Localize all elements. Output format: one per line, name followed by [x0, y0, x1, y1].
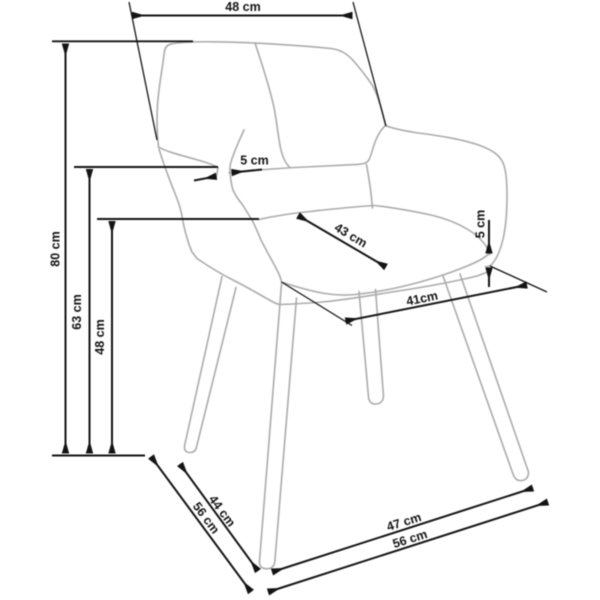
svg-text:41cm: 41cm [405, 288, 439, 308]
svg-text:5 cm: 5 cm [240, 154, 269, 168]
svg-text:80 cm: 80 cm [49, 231, 63, 266]
svg-text:48 cm: 48 cm [93, 319, 107, 354]
svg-text:63 cm: 63 cm [70, 294, 84, 329]
svg-text:48 cm: 48 cm [225, 0, 260, 14]
svg-text:5 cm: 5 cm [474, 210, 488, 239]
